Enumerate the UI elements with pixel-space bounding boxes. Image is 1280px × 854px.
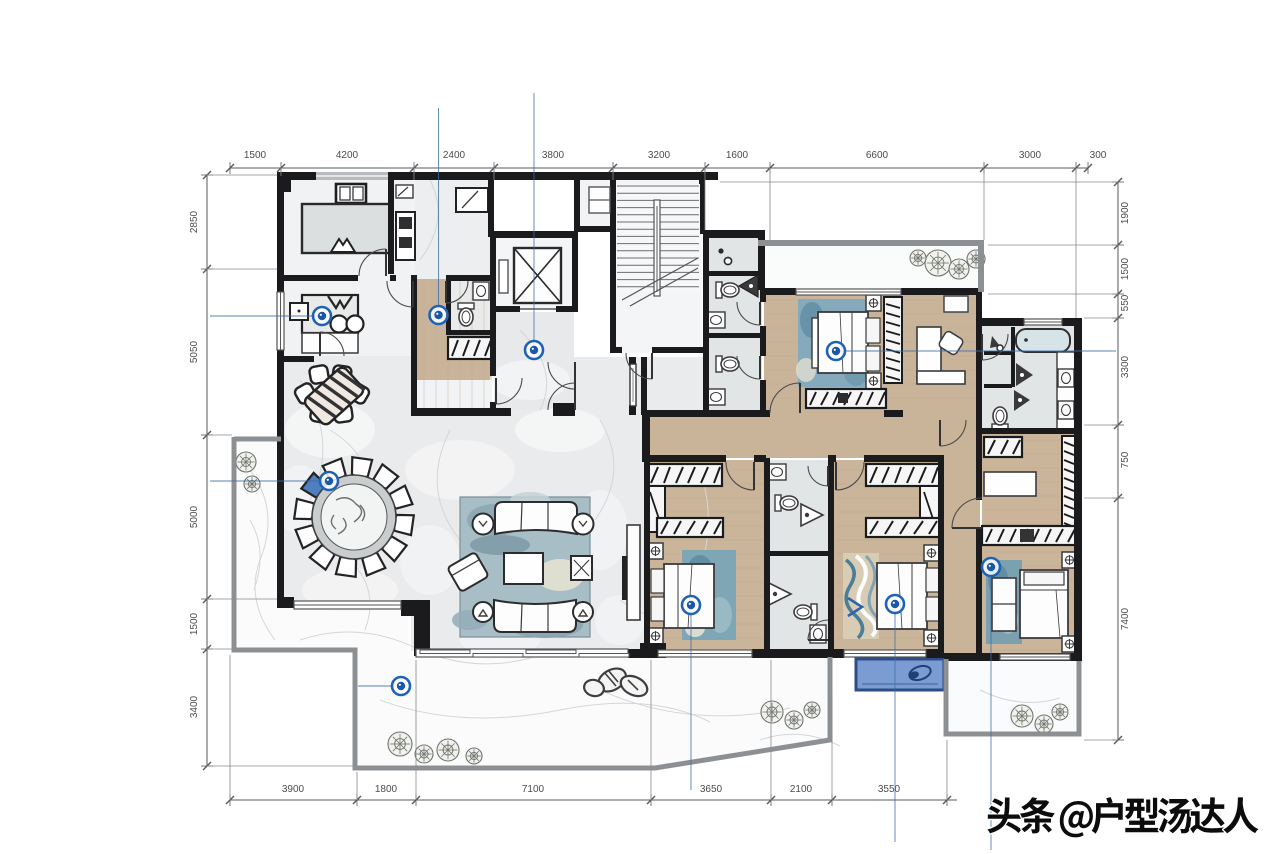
svg-text:1500: 1500 [1120, 257, 1131, 280]
svg-text:5000: 5000 [189, 505, 200, 528]
svg-text:1600: 1600 [726, 150, 749, 161]
svg-text:1900: 1900 [1120, 201, 1131, 224]
svg-text:4200: 4200 [336, 150, 359, 161]
svg-text:3200: 3200 [648, 150, 671, 161]
svg-text:750: 750 [1120, 451, 1131, 468]
svg-text:3400: 3400 [189, 695, 200, 718]
svg-text:3800: 3800 [542, 150, 565, 161]
svg-text:550: 550 [1120, 294, 1131, 311]
svg-text:300: 300 [1090, 150, 1107, 161]
svg-text:3000: 3000 [1019, 150, 1042, 161]
svg-text:7400: 7400 [1120, 607, 1131, 630]
svg-text:2400: 2400 [443, 150, 466, 161]
svg-text:3900: 3900 [282, 784, 305, 795]
svg-text:3300: 3300 [1120, 355, 1131, 378]
svg-text:6600: 6600 [866, 150, 889, 161]
svg-text:3650: 3650 [700, 784, 723, 795]
svg-text:2850: 2850 [189, 210, 200, 233]
svg-text:1800: 1800 [375, 784, 398, 795]
svg-text:1500: 1500 [244, 150, 267, 161]
svg-text:2100: 2100 [790, 784, 813, 795]
svg-text:7100: 7100 [522, 784, 545, 795]
svg-text:5050: 5050 [189, 340, 200, 363]
svg-text:3550: 3550 [878, 784, 901, 795]
svg-text:1500: 1500 [189, 612, 200, 635]
